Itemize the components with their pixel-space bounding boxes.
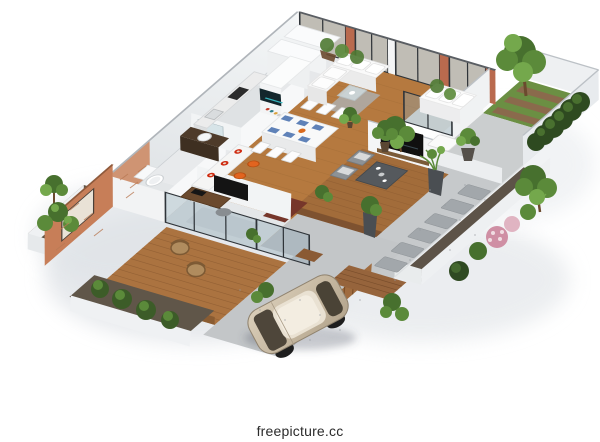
floor-plan-canvas bbox=[0, 0, 600, 442]
watermark-text: freepicture.cc bbox=[0, 423, 600, 439]
floor-plan-render: freepicture.cc bbox=[0, 0, 600, 442]
